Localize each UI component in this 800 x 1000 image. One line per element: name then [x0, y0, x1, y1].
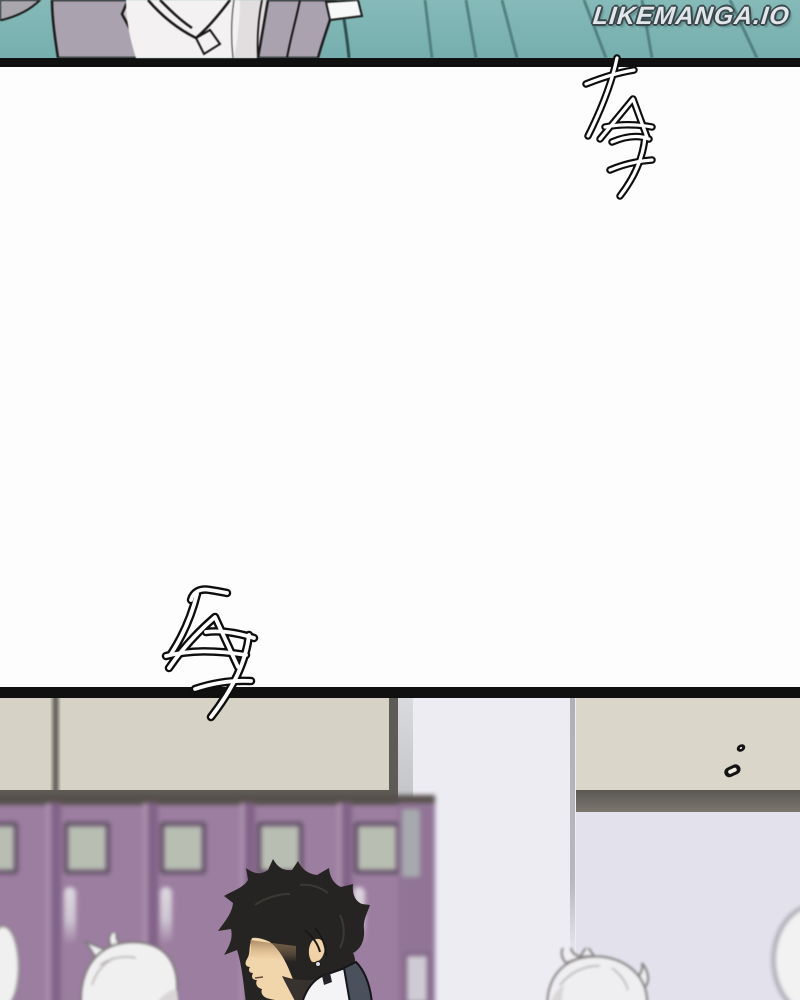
site-watermark: LIKEMANGA.IO: [592, 2, 792, 31]
top-panel: LIKEMANGA.IO: [0, 0, 800, 67]
blurred-figure-right: [772, 903, 800, 1000]
sfx-top-lettering: [570, 52, 670, 202]
manga-page: { "watermark": { "text": "LIKEMANGA.IO" …: [0, 0, 800, 1000]
white-haired-student-center: [535, 948, 665, 1000]
arm-wedge: [0, 0, 40, 20]
wall-seam: [50, 698, 61, 790]
dark-haired-student: [218, 858, 378, 1000]
sfx-middle-lettering: [155, 578, 295, 726]
placard: [326, 0, 362, 20]
locker-frame: [46, 803, 61, 1000]
locker-end-inset: [404, 953, 430, 1000]
beige-wall-right: [576, 698, 800, 790]
locker-top-band: [0, 795, 435, 805]
locker-window: [160, 822, 206, 874]
placard-post: [344, 19, 349, 58]
locker-window: [64, 822, 110, 874]
white-haired-student-left: [70, 933, 190, 1000]
bottom-panel: [0, 687, 800, 1000]
earring: [315, 961, 320, 966]
blazer: [344, 962, 372, 1000]
ink-marks: [715, 735, 755, 790]
wall-edge-strip: [398, 698, 413, 802]
locker-end-inset: [402, 809, 420, 877]
wall-shadow-band: [576, 790, 800, 812]
locker-window: [0, 822, 18, 874]
wall-seam-right: [570, 698, 575, 960]
jacket-right: [258, 0, 336, 58]
mouth: [255, 977, 263, 978]
